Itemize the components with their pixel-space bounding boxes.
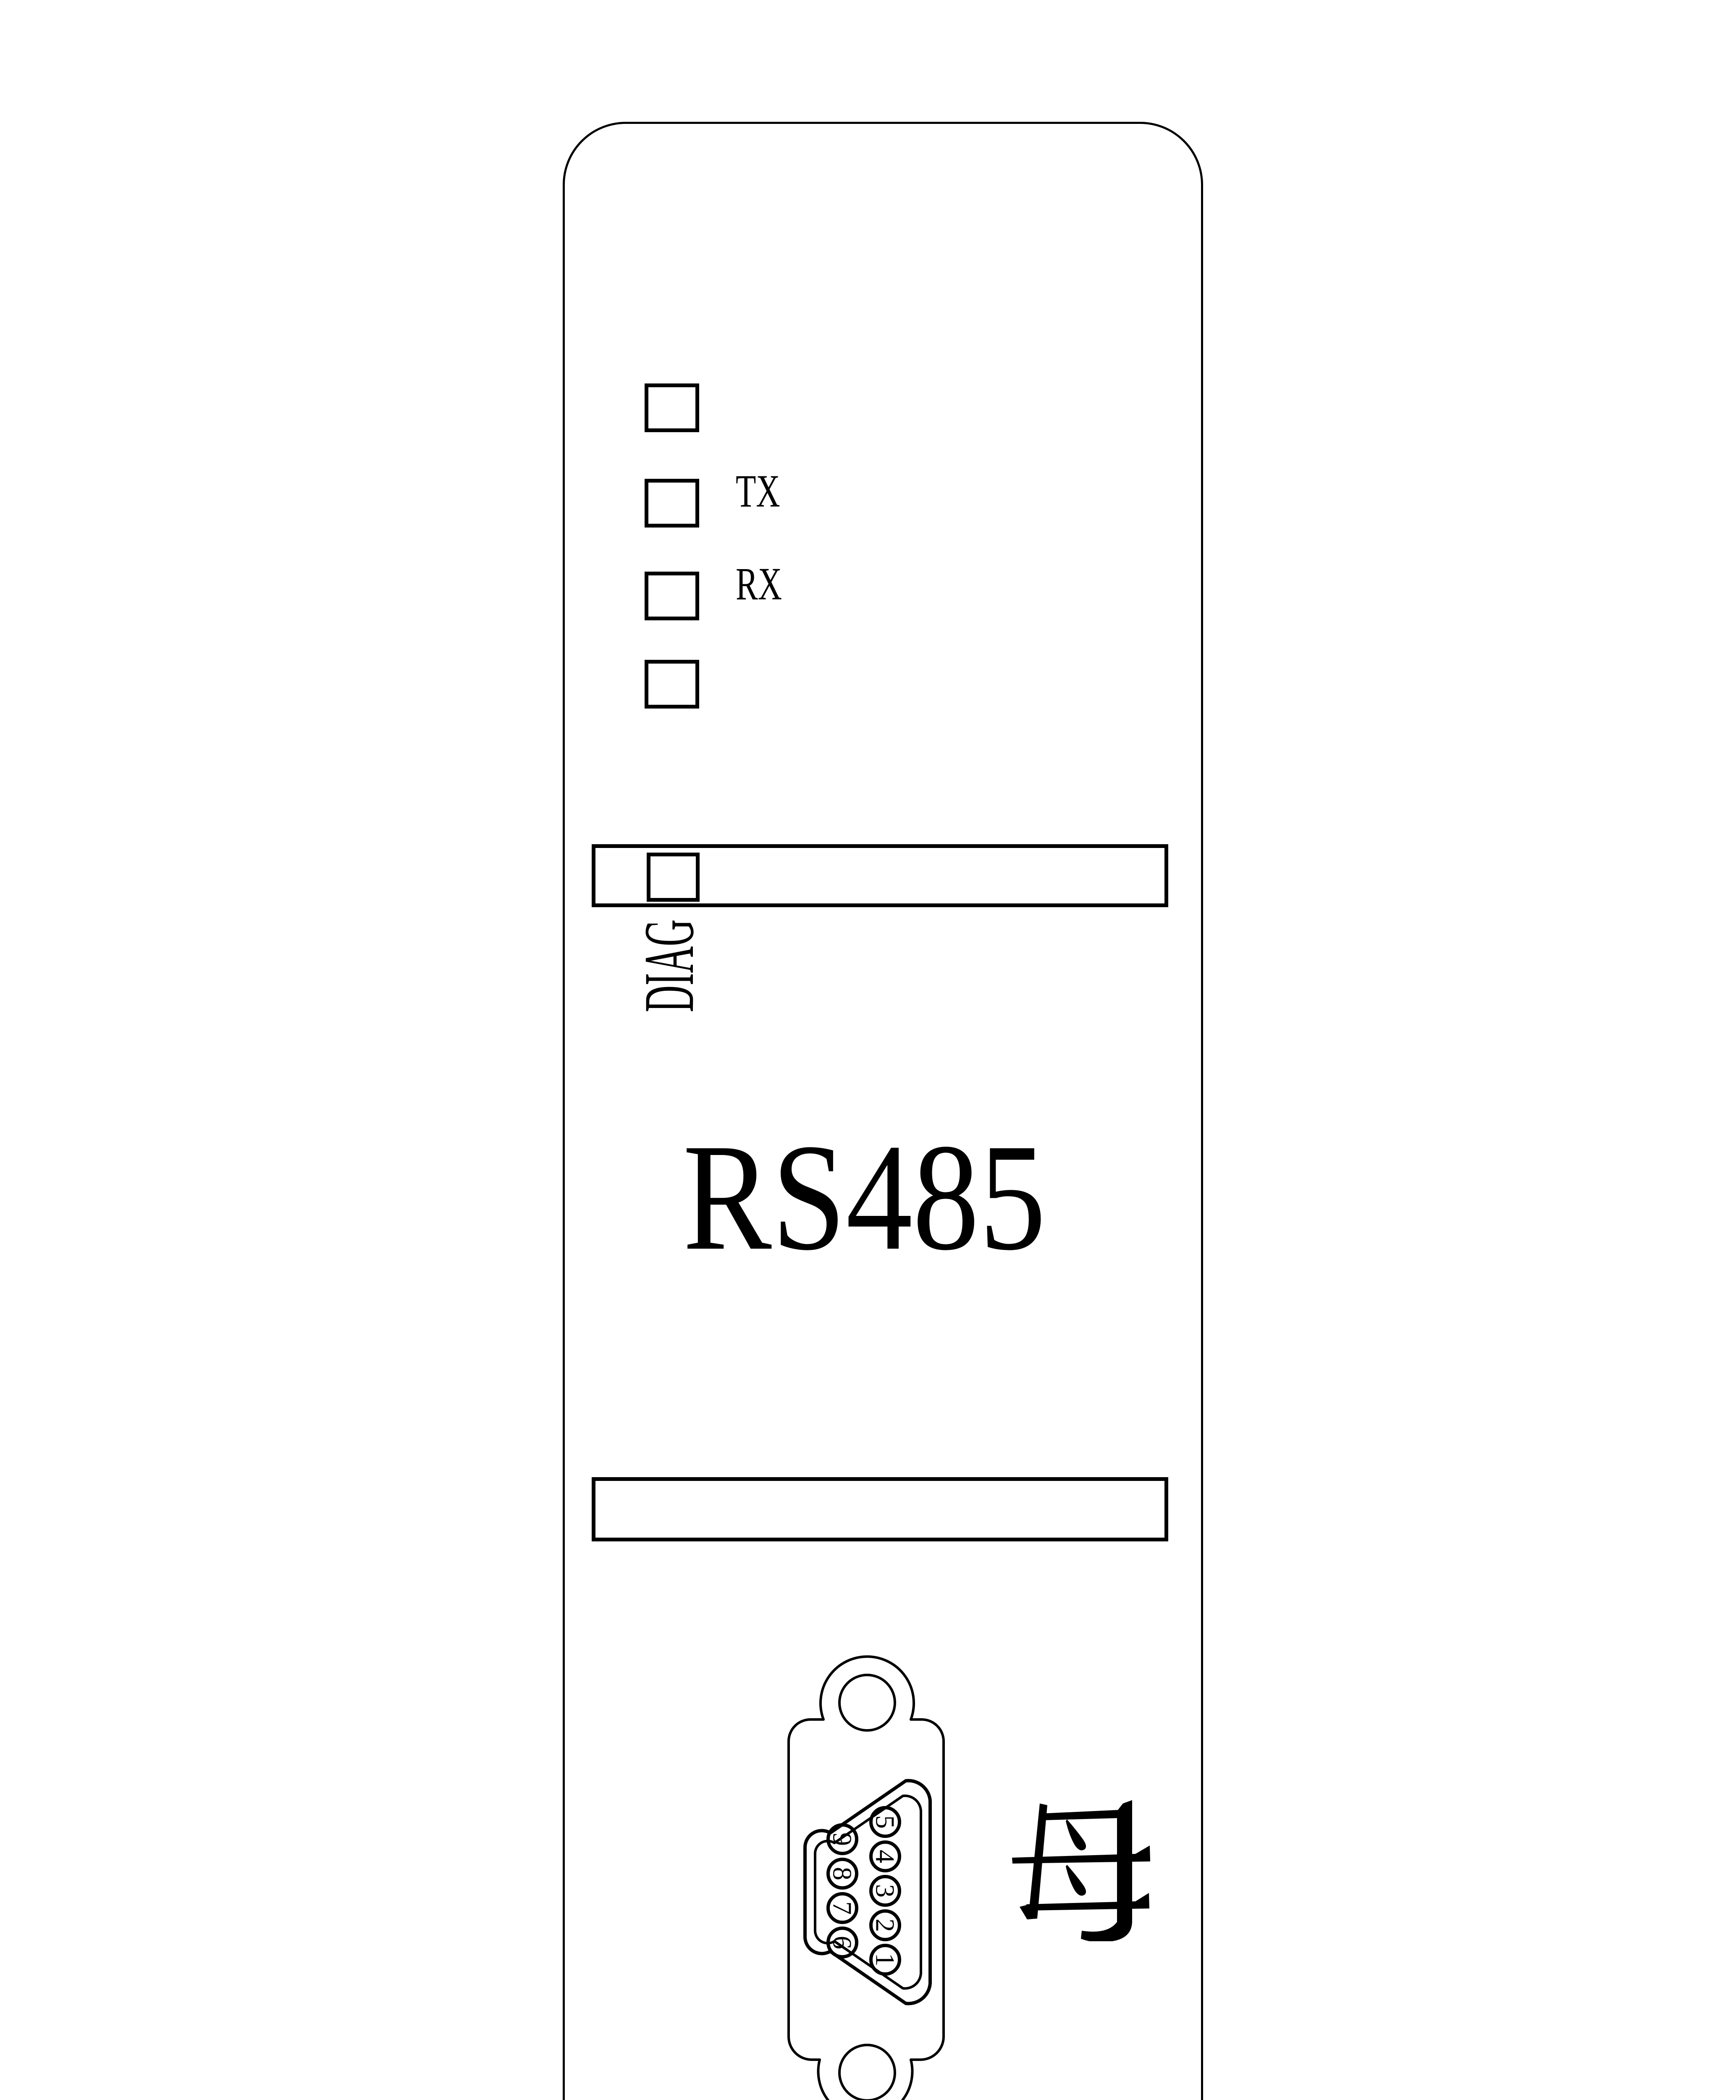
led-indicator-tx [645,479,699,528]
female-character-glyph [1012,1800,1150,1941]
module-type-label: RS485 [683,1121,1046,1274]
pin-2-number: 2 [871,1919,900,1932]
pin-1-number: 1 [871,1953,900,1966]
pin-7-number: 7 [828,1901,858,1915]
label-slot-lower [592,1477,1168,1541]
pin-8-number: 8 [828,1867,858,1880]
led-tx-label: TX [736,468,780,514]
led-diag-label: DIAG [633,919,705,1012]
led-indicator-1 [645,383,699,432]
module-front-panel: TX RX DIAG RS485 5 4 [563,122,1203,2100]
pin-5-number: 5 [871,1815,900,1829]
db9-connector: 5 4 3 2 1 [779,1655,955,2100]
pin-4-number: 4 [871,1850,900,1863]
led-indicator-diag [647,853,700,902]
led-indicator-rx [645,572,699,620]
led-rx-label: RX [736,561,782,607]
pin-3-number: 3 [871,1884,900,1898]
pin-9-number: 9 [828,1832,858,1846]
connector-gender-label: 母 [1011,1798,1154,1941]
led-indicator-2 [645,660,699,709]
drawing-canvas: TX RX DIAG RS485 5 4 [0,0,1736,2100]
pin-6-number: 6 [828,1936,858,1949]
